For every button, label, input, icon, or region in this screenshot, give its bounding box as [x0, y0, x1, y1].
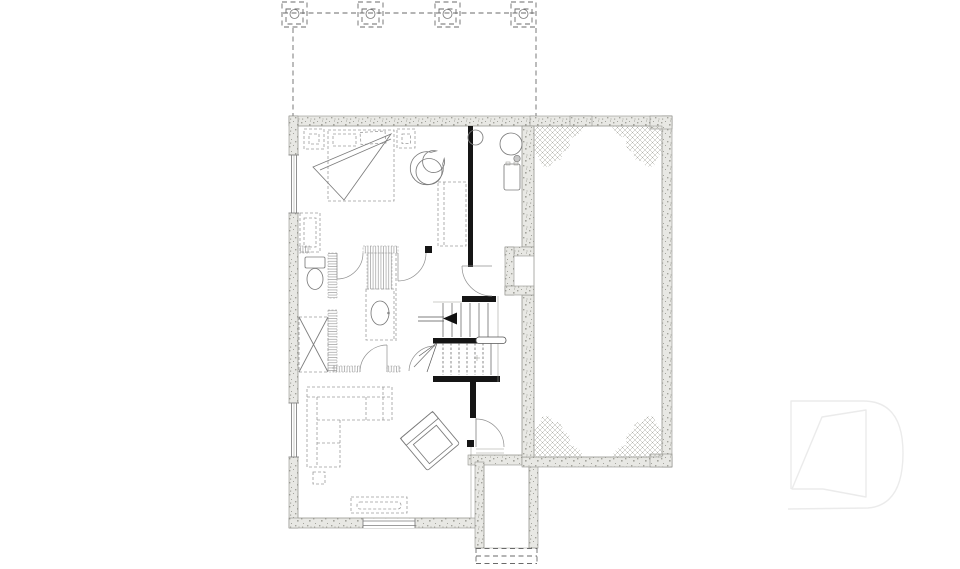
partition-shower — [328, 310, 337, 372]
linen-cabinet — [367, 253, 392, 289]
landing-marker — [474, 355, 480, 361]
door-logo-watermark — [788, 401, 903, 509]
rotated-armchair — [400, 411, 459, 470]
bath-hall-door — [360, 345, 387, 372]
corner-patch-top-right — [612, 126, 662, 167]
nightstand-left — [304, 129, 324, 149]
toilet-room-door — [337, 253, 363, 279]
partition-south-right — [387, 366, 400, 372]
steps-dashed — [476, 548, 537, 564]
valve-circle — [514, 155, 520, 161]
partition-toilet — [328, 253, 337, 298]
garage-pilasters — [570, 116, 672, 467]
corner-patch-bottom-left — [534, 416, 584, 457]
floor-plan-canvas — [0, 0, 960, 569]
exterior-door — [476, 419, 504, 453]
bed — [313, 130, 394, 201]
partition-south-left — [333, 366, 360, 372]
stair-door — [409, 345, 435, 371]
shower-box — [299, 317, 328, 372]
deck-outline — [282, 2, 537, 116]
floor-plan-page — [0, 0, 960, 569]
toilet — [305, 257, 325, 290]
nightstand-right — [397, 129, 415, 148]
utility-door — [462, 266, 492, 296]
tv-console — [351, 497, 407, 513]
deck-footing-post-3 — [435, 2, 460, 27]
vanity-sink — [366, 289, 394, 340]
exterior-stairwell — [475, 465, 538, 564]
partition-bedroom-south — [363, 246, 398, 253]
winder-treads — [419, 343, 437, 372]
window-bottom — [363, 519, 415, 529]
deck-footing-post-4 — [511, 2, 536, 27]
equipment-panel — [504, 162, 520, 190]
window-left-upper — [289, 155, 300, 213]
deck-footing-post-1 — [282, 2, 307, 27]
bathroom — [298, 246, 426, 372]
living-room — [307, 387, 460, 513]
tank-large — [500, 133, 522, 155]
bedroom — [300, 129, 466, 252]
wardrobe — [438, 182, 466, 246]
direction-arrow — [418, 313, 457, 325]
wall-post-bedroom — [425, 246, 432, 253]
bedroom-door — [398, 253, 426, 281]
sectional-sofa — [307, 387, 392, 467]
exterior-walls — [289, 116, 672, 548]
side-table — [313, 472, 325, 484]
rear-hall — [476, 418, 504, 453]
corner-patch-top-left — [534, 126, 584, 167]
new-framed-walls — [425, 126, 500, 447]
partition-stub-left — [298, 246, 310, 253]
corner-patch-bottom-right — [612, 416, 662, 457]
garage-corner-patches — [534, 126, 662, 457]
chimney-notch — [505, 247, 534, 295]
handrail — [476, 337, 506, 344]
stair-treads-lower-dashed — [443, 343, 491, 375]
wall-post-hall — [467, 440, 474, 447]
deck-footing-post-2 — [358, 2, 383, 27]
window-left-lower — [289, 403, 300, 457]
